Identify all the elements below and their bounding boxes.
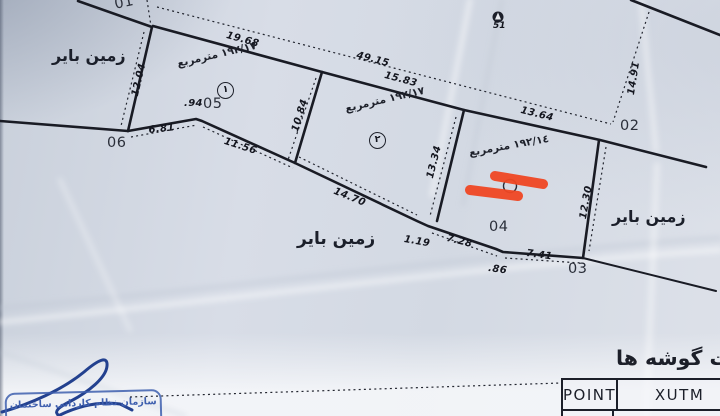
land-use-label: زمین بایر <box>297 229 375 249</box>
coordinates-table: POINT XUTM <box>561 378 720 416</box>
scanned-survey-plan: 19.6849.1515.8313.6414.9112.046.81.9411.… <box>0 0 720 416</box>
dimension-label: .94 <box>184 98 203 109</box>
table-header-row: POINT XUTM <box>563 380 720 411</box>
land-use-label: زمین بایر <box>612 207 686 226</box>
plot-number-circled: ٢ <box>369 132 386 149</box>
corner-point-label: 04 <box>489 219 508 235</box>
corner-point-label: 02 <box>620 118 639 134</box>
corner-point-label: 05 <box>203 96 222 112</box>
plot-number-circled: ١ <box>217 82 234 99</box>
coordinates-table-title: ات گوشه ها <box>616 346 720 370</box>
corner-point-label: 03 <box>568 261 587 277</box>
table-body-xutm-cell <box>614 411 720 416</box>
table-header-point: POINT <box>563 380 618 409</box>
land-use-label: زمین بایر <box>52 46 126 65</box>
red-marker-highlight <box>470 176 543 196</box>
official-stamp: سازمان نظام کاردانی ساختمان <box>5 389 163 416</box>
table-body-point-cell <box>563 411 614 416</box>
table-header-xutm: XUTM <box>618 380 720 409</box>
benchmark-point-label: 51 <box>493 21 506 31</box>
table-body-row-partial <box>563 411 720 416</box>
stamp-text: سازمان نظام کاردانی ساختمان <box>10 396 157 411</box>
corner-point-label: 06 <box>107 135 126 151</box>
